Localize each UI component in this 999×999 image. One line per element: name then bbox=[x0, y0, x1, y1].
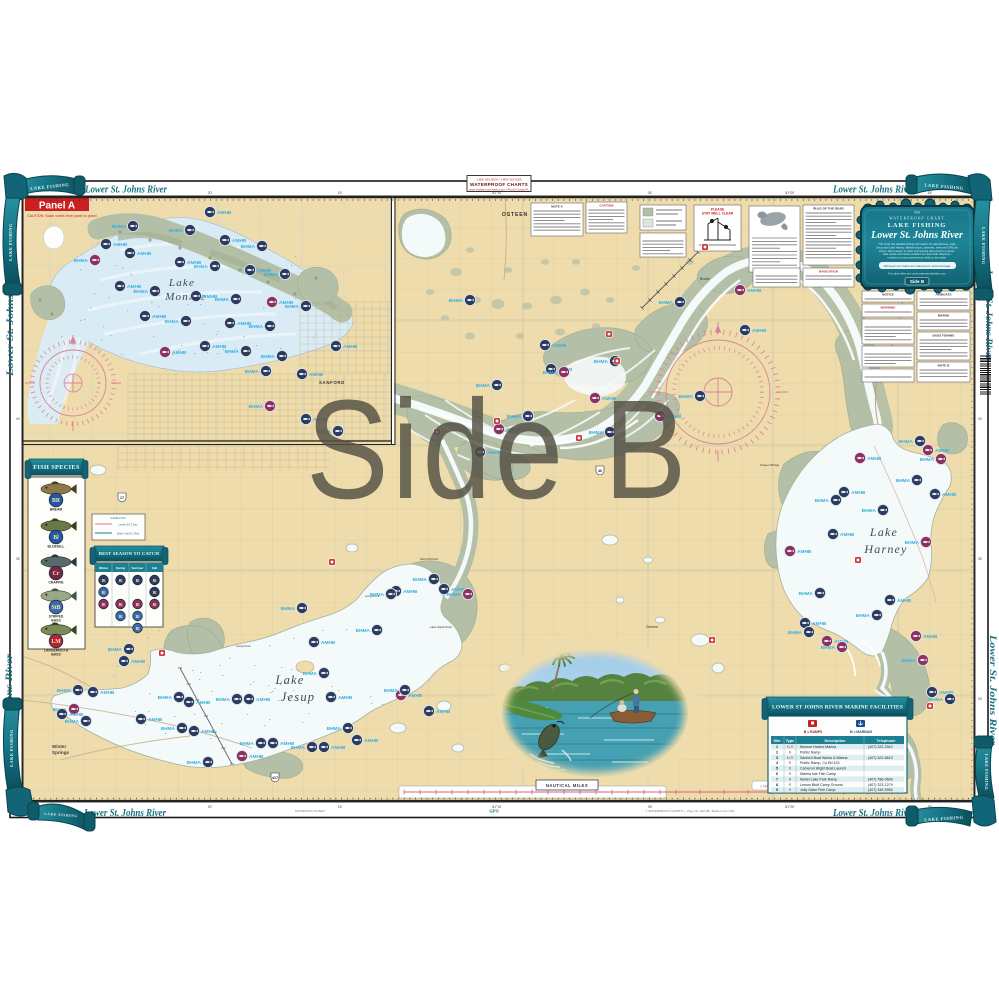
svg-text:Springs: Springs bbox=[52, 750, 70, 755]
svg-text:StB: StB bbox=[52, 605, 61, 611]
svg-text:BHMA: BHMA bbox=[815, 498, 830, 504]
svg-text:AMHB: AMHB bbox=[113, 242, 128, 248]
svg-text:LAKE FISHING: LAKE FISHING bbox=[888, 222, 947, 229]
svg-text:Osteen Bridge: Osteen Bridge bbox=[760, 463, 780, 467]
svg-text:9: 9 bbox=[776, 788, 778, 792]
svg-text:Although our charts are waterp: Although our charts are waterproof, avoi… bbox=[884, 264, 951, 268]
svg-text:OSTEEN: OSTEEN bbox=[502, 212, 528, 218]
svg-text:BHMA: BHMA bbox=[241, 244, 256, 250]
svg-text:AMHB: AMHB bbox=[747, 288, 762, 294]
svg-text:1: 1 bbox=[776, 745, 778, 749]
svg-text:BHMA: BHMA bbox=[896, 478, 911, 484]
svg-text:Lower St. Johns River: Lower St. Johns River bbox=[832, 185, 916, 196]
svg-text:LAKE FISHING: LAKE FISHING bbox=[984, 754, 989, 790]
svg-text:BEST SEASON TO CATCH: BEST SEASON TO CATCH bbox=[99, 551, 159, 556]
svg-text:AMHB: AMHB bbox=[131, 659, 146, 665]
svg-text:BHMA: BHMA bbox=[216, 697, 231, 703]
svg-text:Water Trail St. Rink: Water Trail St. Rink bbox=[117, 532, 140, 536]
svg-text:Jesup: Jesup bbox=[281, 690, 315, 704]
svg-text:BHMA: BHMA bbox=[370, 592, 385, 598]
svg-text:Panel A: Panel A bbox=[39, 201, 75, 212]
svg-text:8: 8 bbox=[776, 783, 778, 787]
svg-text:BHMA: BHMA bbox=[134, 289, 149, 295]
svg-text:MARSH: MARSH bbox=[938, 314, 950, 318]
svg-text:BHMA: BHMA bbox=[659, 300, 674, 306]
svg-text:Harney: Harney bbox=[863, 542, 907, 556]
svg-text:M-R: M-R bbox=[787, 756, 794, 760]
svg-text:BHMA: BHMA bbox=[249, 404, 264, 410]
svg-text:40': 40' bbox=[978, 417, 983, 421]
svg-text:NOTE A: NOTE A bbox=[551, 205, 563, 209]
svg-text:BR: BR bbox=[52, 498, 61, 504]
svg-text:BHMA: BHMA bbox=[225, 349, 240, 355]
svg-text:Description: Description bbox=[825, 739, 847, 743]
svg-text:Levels 8-12 Day: Levels 8-12 Day bbox=[119, 523, 138, 527]
svg-text:Public Ramp, Co Rd 415: Public Ramp, Co Rd 415 bbox=[800, 761, 840, 765]
svg-text:Winter: Winter bbox=[99, 566, 109, 570]
svg-text:Bait, tackle and marine facili: Bait, tackle and marine facilities are l… bbox=[883, 252, 951, 256]
svg-text:Side B: Side B bbox=[910, 279, 925, 284]
svg-text:Mullet Lake Park Ramp: Mullet Lake Park Ramp bbox=[800, 777, 837, 781]
svg-text:BHMA: BHMA bbox=[285, 304, 300, 310]
svg-text:Lake Sand Point: Lake Sand Point bbox=[430, 625, 452, 629]
svg-text:BHMA: BHMA bbox=[240, 741, 255, 747]
svg-text:AMHB: AMHB bbox=[338, 695, 353, 701]
svg-text:© WATERPROOF CHARTS — Pag. No.: © WATERPROOF CHARTS — Pag. No. 322-08 • … bbox=[645, 809, 734, 813]
svg-text:BHMA: BHMA bbox=[215, 297, 230, 303]
svg-text:Lower St. Johns River: Lower St. Johns River bbox=[832, 808, 916, 819]
svg-text:BHMA: BHMA bbox=[291, 745, 306, 751]
svg-text:BHMA: BHMA bbox=[447, 592, 462, 598]
svg-text:Long Point: Long Point bbox=[236, 644, 251, 648]
svg-text:LM: LM bbox=[51, 639, 61, 645]
svg-text:AMHB: AMHB bbox=[436, 709, 451, 715]
svg-text:AMHB: AMHB bbox=[364, 738, 379, 744]
svg-text:Lake: Lake bbox=[274, 673, 304, 687]
svg-text:BHMA: BHMA bbox=[187, 760, 202, 766]
svg-text:Summer: Summer bbox=[131, 566, 144, 570]
svg-text:AMHB: AMHB bbox=[256, 697, 271, 703]
svg-text:AMHB: AMHB bbox=[897, 598, 912, 604]
svg-text:LAKE FISHING: LAKE FISHING bbox=[981, 227, 986, 265]
svg-text:BHMA: BHMA bbox=[112, 224, 127, 230]
svg-text:BHMA: BHMA bbox=[862, 508, 877, 514]
svg-text:NAUTICAL MILES: NAUTICAL MILES bbox=[546, 783, 588, 788]
svg-text:AMHB: AMHB bbox=[935, 448, 950, 454]
svg-text:#39: #39 bbox=[914, 211, 920, 215]
svg-text:AMHB: AMHB bbox=[217, 210, 232, 216]
svg-text:STAY WELL CLEAR: STAY WELL CLEAR bbox=[702, 212, 734, 216]
svg-text:GPS: GPS bbox=[489, 809, 498, 814]
svg-text:(407) 322-8613: (407) 322-8613 bbox=[868, 756, 893, 760]
svg-text:BHMA: BHMA bbox=[74, 258, 89, 264]
svg-text:AMHB: AMHB bbox=[331, 745, 346, 751]
svg-text:BHMA: BHMA bbox=[384, 688, 399, 694]
svg-text:Bl: Bl bbox=[53, 535, 59, 541]
svg-text:Marina Isle Fish Camp: Marina Isle Fish Camp bbox=[800, 772, 836, 776]
svg-text:Lower St. Johns River: Lower St. Johns River bbox=[84, 185, 168, 196]
svg-text:Winter: Winter bbox=[52, 744, 66, 749]
svg-text:BHMA: BHMA bbox=[788, 630, 803, 636]
svg-text:BHMA: BHMA bbox=[158, 695, 173, 701]
svg-text:AMHB: AMHB bbox=[752, 328, 767, 334]
svg-text:LAKE FISHING: LAKE FISHING bbox=[9, 729, 14, 767]
svg-text:BHMA: BHMA bbox=[245, 369, 260, 375]
svg-text:Monroe Harbor Marina: Monroe Harbor Marina bbox=[800, 745, 836, 749]
svg-text:Jolly Gator Fish Camp: Jolly Gator Fish Camp bbox=[800, 788, 836, 792]
svg-text:Geneva: Geneva bbox=[646, 625, 658, 629]
svg-text:CAUTION: Scale varies from pan: CAUTION: Scale varies from panel to pane… bbox=[27, 214, 97, 218]
svg-text:AMHB: AMHB bbox=[403, 589, 418, 595]
svg-text:BHMA: BHMA bbox=[108, 647, 123, 653]
svg-text:BHMA: BHMA bbox=[905, 540, 920, 546]
svg-text:Fall: Fall bbox=[152, 566, 157, 570]
svg-text:GAME FISH: GAME FISH bbox=[110, 516, 125, 520]
svg-text:AMHB: AMHB bbox=[321, 640, 336, 646]
svg-text:BHMA: BHMA bbox=[261, 354, 276, 360]
svg-text:3: 3 bbox=[776, 756, 778, 760]
svg-text:BHMA: BHMA bbox=[929, 697, 944, 703]
svg-text:CRAPPIE: CRAPPIE bbox=[48, 581, 64, 585]
svg-text:WARNING: WARNING bbox=[881, 306, 897, 310]
svg-text:40': 40' bbox=[16, 417, 21, 421]
svg-text:AMHB: AMHB bbox=[196, 700, 211, 706]
svg-text:Sanford Boat Works & Marina: Sanford Boat Works & Marina bbox=[800, 756, 847, 760]
svg-text:Telephone: Telephone bbox=[877, 739, 896, 743]
svg-text:BHMA: BHMA bbox=[356, 628, 371, 634]
svg-text:(407) 323-1279: (407) 323-1279 bbox=[868, 783, 893, 787]
svg-text:81°00': 81°00' bbox=[785, 191, 795, 195]
svg-text:BHMA: BHMA bbox=[249, 324, 264, 330]
svg-text:Cameron Wight Boat Launch: Cameron Wight Boat Launch bbox=[800, 767, 846, 771]
svg-text:AMHB: AMHB bbox=[232, 238, 247, 244]
svg-text:AMHB: AMHB bbox=[552, 343, 567, 349]
svg-text:05': 05' bbox=[648, 191, 653, 195]
svg-text:AMHB: AMHB bbox=[249, 754, 264, 760]
svg-text:20': 20' bbox=[208, 805, 213, 809]
svg-text:Lake: Lake bbox=[869, 525, 898, 539]
svg-text:2: 2 bbox=[776, 750, 778, 754]
svg-text:20': 20' bbox=[208, 191, 213, 195]
svg-text:numbers for your convenience w: numbers for your convenience while on th… bbox=[887, 256, 946, 260]
svg-text:LAKE FISHING: LAKE FISHING bbox=[8, 223, 13, 261]
svg-text:AMHB: AMHB bbox=[797, 549, 812, 555]
svg-text:81°00': 81°00' bbox=[785, 805, 795, 809]
svg-text:BHMA: BHMA bbox=[413, 577, 428, 583]
svg-text:AMHB: AMHB bbox=[840, 532, 855, 538]
svg-text:BASS: BASS bbox=[51, 619, 61, 623]
svg-text:BHMA: BHMA bbox=[169, 228, 184, 234]
svg-text:5: 5 bbox=[776, 767, 778, 771]
svg-text:Lower St. Johns River: Lower St. Johns River bbox=[988, 634, 998, 746]
svg-text:shown. Best season to catch an: shown. Best season to catch and species … bbox=[879, 249, 955, 253]
svg-text:RULE OF THE ROAD: RULE OF THE ROAD bbox=[813, 207, 844, 211]
svg-text:AMHB: AMHB bbox=[172, 350, 187, 356]
svg-text:AMHB: AMHB bbox=[148, 717, 163, 723]
svg-text:15': 15' bbox=[338, 805, 343, 809]
svg-text:BHMA: BHMA bbox=[327, 726, 342, 732]
svg-text:BHMA: BHMA bbox=[856, 613, 871, 619]
svg-text:BHMA: BHMA bbox=[799, 591, 814, 597]
svg-text:AMHB: AMHB bbox=[851, 490, 866, 496]
svg-text:BHMA: BHMA bbox=[161, 726, 176, 732]
svg-text:BHMA: BHMA bbox=[57, 688, 72, 694]
svg-text:(407) 788-0609: (407) 788-0609 bbox=[868, 777, 893, 781]
svg-text:M = MARINAS: M = MARINAS bbox=[850, 730, 873, 734]
svg-text:Site: Site bbox=[774, 739, 781, 743]
svg-text:35': 35' bbox=[978, 557, 983, 561]
svg-text:BHMA: BHMA bbox=[449, 298, 464, 304]
svg-text:7: 7 bbox=[776, 777, 778, 781]
svg-text:AMHB: AMHB bbox=[812, 621, 827, 627]
svg-text:(407) 349-9354: (407) 349-9354 bbox=[868, 788, 893, 792]
svg-text:BLUEGILL: BLUEGILL bbox=[48, 545, 65, 549]
svg-text:Type: Type bbox=[786, 739, 795, 743]
svg-text:30': 30' bbox=[978, 697, 983, 701]
svg-text:Mud Rd Point: Mud Rd Point bbox=[420, 557, 438, 561]
svg-text:6: 6 bbox=[776, 772, 778, 776]
svg-text:AMHB: AMHB bbox=[137, 251, 152, 257]
svg-text:Lower St. Johns River: Lower St. Johns River bbox=[83, 808, 167, 819]
svg-text:BHMA: BHMA bbox=[920, 457, 935, 463]
svg-text:417: 417 bbox=[272, 776, 278, 780]
svg-text:WATERPROOF CHARTS: WATERPROOF CHARTS bbox=[470, 182, 528, 187]
svg-text:AMHB: AMHB bbox=[201, 729, 216, 735]
svg-text:LOWER ST JOHNS RIVER MARINE FA: LOWER ST JOHNS RIVER MARINE FACILITIES bbox=[772, 705, 903, 711]
svg-text:B = RAMPS: B = RAMPS bbox=[804, 730, 823, 734]
svg-text:AMHB: AMHB bbox=[942, 492, 957, 498]
svg-text:Lake: Lake bbox=[168, 277, 195, 289]
svg-text:BHMA: BHMA bbox=[264, 272, 279, 278]
svg-text:WATERPROOF CHART: WATERPROOF CHART bbox=[889, 217, 945, 221]
svg-text:4: 4 bbox=[776, 761, 778, 765]
svg-text:AMHB: AMHB bbox=[408, 693, 423, 699]
svg-text:FISH SPECIES: FISH SPECIES bbox=[33, 464, 80, 471]
svg-text:17: 17 bbox=[120, 496, 124, 500]
svg-text:For other titles see www.water: For other titles see www.waterproofchart… bbox=[888, 272, 946, 276]
svg-text:BREAM: BREAM bbox=[50, 508, 63, 512]
svg-text:BHMA: BHMA bbox=[194, 264, 209, 270]
svg-text:Public Ramp: Public Ramp bbox=[800, 750, 820, 754]
svg-text:BHMA: BHMA bbox=[65, 719, 80, 725]
svg-text:Lower St. Johns River: Lower St. Johns River bbox=[870, 230, 963, 241]
svg-text:AMHB: AMHB bbox=[923, 634, 938, 640]
svg-text:(407) 322-2910: (407) 322-2910 bbox=[868, 745, 893, 749]
svg-text:BHMA: BHMA bbox=[281, 606, 296, 612]
svg-text:BHMA: BHMA bbox=[303, 671, 318, 677]
svg-text:BHMA: BHMA bbox=[821, 645, 836, 651]
svg-text:1-800-423-9026 • 1-800-423-902: 1-800-423-9026 • 1-800-423-9026 bbox=[476, 178, 522, 182]
svg-text:BHMA: BHMA bbox=[899, 439, 914, 445]
svg-text:AMHB: AMHB bbox=[343, 344, 358, 350]
svg-text:NAVIGATION: NAVIGATION bbox=[819, 270, 839, 274]
svg-text:M-R: M-R bbox=[787, 745, 794, 749]
svg-text:AMHB: AMHB bbox=[100, 690, 115, 696]
svg-text:NOTE B: NOTE B bbox=[938, 364, 950, 368]
svg-text:35': 35' bbox=[16, 557, 21, 561]
svg-text:AMHB: AMHB bbox=[867, 456, 882, 462]
svg-text:Spring: Spring bbox=[116, 566, 126, 570]
svg-text:55': 55' bbox=[928, 191, 933, 195]
svg-text:BASS: BASS bbox=[51, 653, 61, 657]
svg-text:BASS FISHING: BASS FISHING bbox=[932, 334, 955, 338]
svg-text:BHMA: BHMA bbox=[902, 658, 917, 664]
svg-text:NOTICE: NOTICE bbox=[882, 293, 894, 297]
svg-text:Lemon Bluff Camp Ground: Lemon Bluff Camp Ground bbox=[800, 783, 843, 787]
svg-text:BHMA: BHMA bbox=[594, 359, 609, 365]
svg-text:Brodie: Brodie bbox=[700, 277, 710, 281]
svg-text:www.waterproofcharts.com • Pun: www.waterproofcharts.com • Punta Gorda F… bbox=[469, 188, 529, 192]
svg-text:This chart has detailed fishin: This chart has detailed fishing informat… bbox=[878, 242, 956, 246]
svg-text:Cr: Cr bbox=[53, 571, 60, 577]
svg-text:15': 15' bbox=[338, 191, 343, 195]
svg-text:BHMA: BHMA bbox=[165, 319, 180, 325]
svg-text:Jesup and Lake Harney. Marker: Jesup and Lake Harney. Marker buoys, cha… bbox=[876, 245, 958, 249]
svg-text:SOUNDINGS IN FEET: SOUNDINGS IN FEET bbox=[295, 809, 326, 813]
svg-text:CAUTION: CAUTION bbox=[599, 204, 614, 208]
